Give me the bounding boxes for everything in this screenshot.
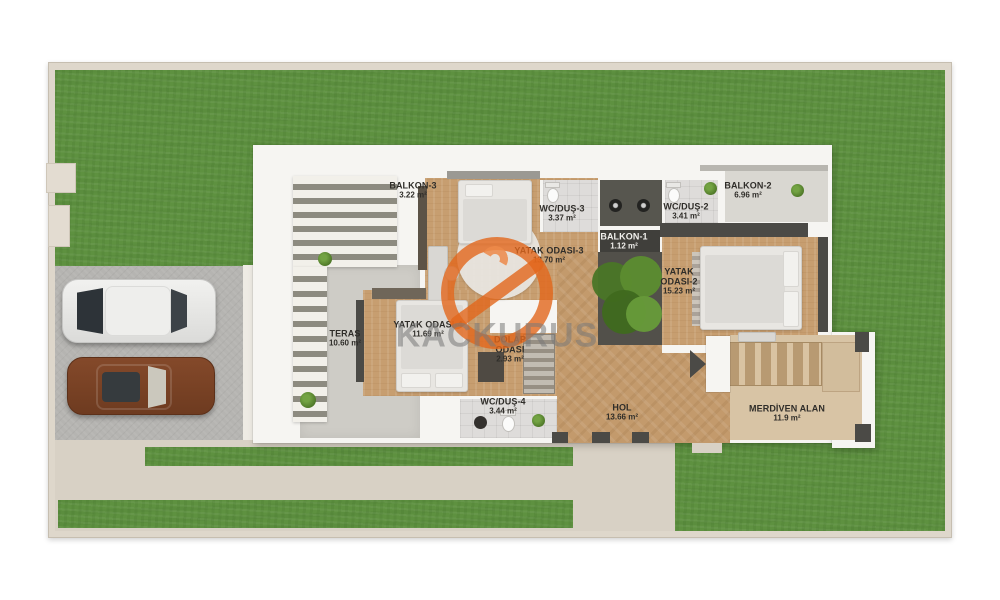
gate-post-upper bbox=[46, 163, 76, 193]
toilet-wc4-bowl bbox=[502, 416, 515, 432]
room-label-hol: HOL 13.66 m² bbox=[606, 402, 638, 421]
watermark-text: KACKURUS bbox=[396, 317, 599, 356]
room-name: MERDİVEN ALAN bbox=[749, 403, 825, 413]
wall-south-seg-1 bbox=[552, 432, 568, 443]
sink-vanity-left bbox=[609, 199, 622, 212]
room-area: 3.22 m² bbox=[399, 190, 427, 199]
pillow bbox=[401, 373, 431, 388]
car-rear-window bbox=[171, 289, 187, 333]
bench-bedroom2 bbox=[738, 332, 776, 342]
railing-balkon2 bbox=[700, 165, 828, 171]
room-label-wc-dus-3: WC/DUŞ-3 3.37 m² bbox=[539, 203, 584, 222]
room-name: TERAS bbox=[329, 328, 360, 338]
room-area: 10.60 m² bbox=[329, 338, 361, 347]
blanket bbox=[705, 255, 785, 323]
pergola-roof-top bbox=[293, 176, 397, 267]
floor-plan-canvas: BALKON-3 3.22 m² WC/DUŞ-3 3.37 m² WC/DUŞ… bbox=[0, 0, 1000, 600]
room-label-merdiven-alan: MERDİVEN ALAN 11.9 m² bbox=[749, 403, 825, 422]
sink-vanity-right bbox=[637, 199, 650, 212]
dresser-bedroom4 bbox=[372, 288, 426, 299]
room-name: YATAK ODASI-2 bbox=[654, 266, 704, 286]
room-area: 3.37 m² bbox=[548, 213, 576, 222]
room-area: 6.96 m² bbox=[734, 190, 762, 199]
room-label-yatak-odasi-2: YATAK ODASI-2 15.23 m² bbox=[654, 266, 704, 295]
bed-bedroom3 bbox=[458, 180, 532, 244]
room-area: 3.44 m² bbox=[489, 406, 517, 415]
room-label-balkon-2: BALKON-2 6.96 m² bbox=[724, 180, 771, 199]
pillow bbox=[783, 291, 799, 327]
car-roof-outline bbox=[96, 364, 172, 410]
wall-south-seg-2 bbox=[592, 432, 610, 443]
room-name: BALKON-2 bbox=[724, 180, 771, 190]
gate-post-lower bbox=[48, 205, 70, 247]
room-area: 1.12 m² bbox=[610, 241, 638, 250]
room-label-teras: TERAS 10.60 m² bbox=[329, 328, 361, 347]
room-name: BALKON-1 bbox=[600, 231, 647, 241]
wall-bedroom2-north bbox=[660, 223, 808, 237]
room-area: 3.41 m² bbox=[672, 211, 700, 220]
room-label-wc-dus-2: WC/DUŞ-2 3.41 m² bbox=[663, 201, 708, 220]
blanket bbox=[463, 199, 527, 241]
pillow bbox=[435, 373, 463, 388]
room-area: 13.66 m² bbox=[606, 412, 638, 421]
room-name: WC/DUŞ-3 bbox=[539, 203, 584, 213]
pillow bbox=[783, 251, 799, 287]
toilet-wc3-bowl bbox=[547, 188, 559, 203]
room-name: WC/DUŞ-4 bbox=[480, 396, 525, 406]
stairs-arrow bbox=[690, 350, 706, 378]
stool-wc4 bbox=[474, 416, 487, 429]
car-white bbox=[62, 279, 216, 343]
room-label-balkon-3: BALKON-3 3.22 m² bbox=[389, 180, 436, 199]
room-area: 2.93 m² bbox=[496, 354, 524, 363]
window-north-bedroom3 bbox=[447, 171, 540, 179]
wall-south-seg-3 bbox=[632, 432, 649, 443]
grass-strip-1 bbox=[145, 447, 573, 466]
pillow bbox=[465, 184, 493, 197]
plant-pergola-1 bbox=[318, 252, 332, 266]
stairs-pillar bbox=[706, 336, 730, 392]
room-label-balkon-1: BALKON-1 1.12 m² bbox=[600, 231, 647, 250]
room-name: HOL bbox=[612, 402, 631, 412]
car-windshield bbox=[77, 288, 103, 334]
room-name: WC/DUŞ-2 bbox=[663, 201, 708, 211]
plant-pergola-2 bbox=[300, 392, 316, 408]
room-name: BALKON-3 bbox=[389, 180, 436, 190]
plant-balkon2 bbox=[791, 184, 804, 197]
room-area: 11.9 m² bbox=[773, 413, 800, 422]
car-brown bbox=[67, 357, 215, 415]
room-area: 15.23 m² bbox=[663, 286, 695, 295]
plant-wc4 bbox=[532, 414, 545, 427]
car-roof bbox=[105, 286, 171, 336]
grass-strip-2 bbox=[58, 500, 573, 528]
wall-stairs-east-top bbox=[855, 332, 869, 352]
wall-stairs-east-bottom bbox=[855, 424, 871, 442]
stairs-treads bbox=[728, 342, 822, 386]
tree-foliage bbox=[626, 296, 662, 332]
plant-wc2 bbox=[704, 182, 717, 195]
wall-bedroom2-east bbox=[818, 237, 828, 332]
bed-bedroom2 bbox=[700, 246, 802, 330]
room-label-wc-dus-4: WC/DUŞ-4 3.44 m² bbox=[480, 396, 525, 415]
